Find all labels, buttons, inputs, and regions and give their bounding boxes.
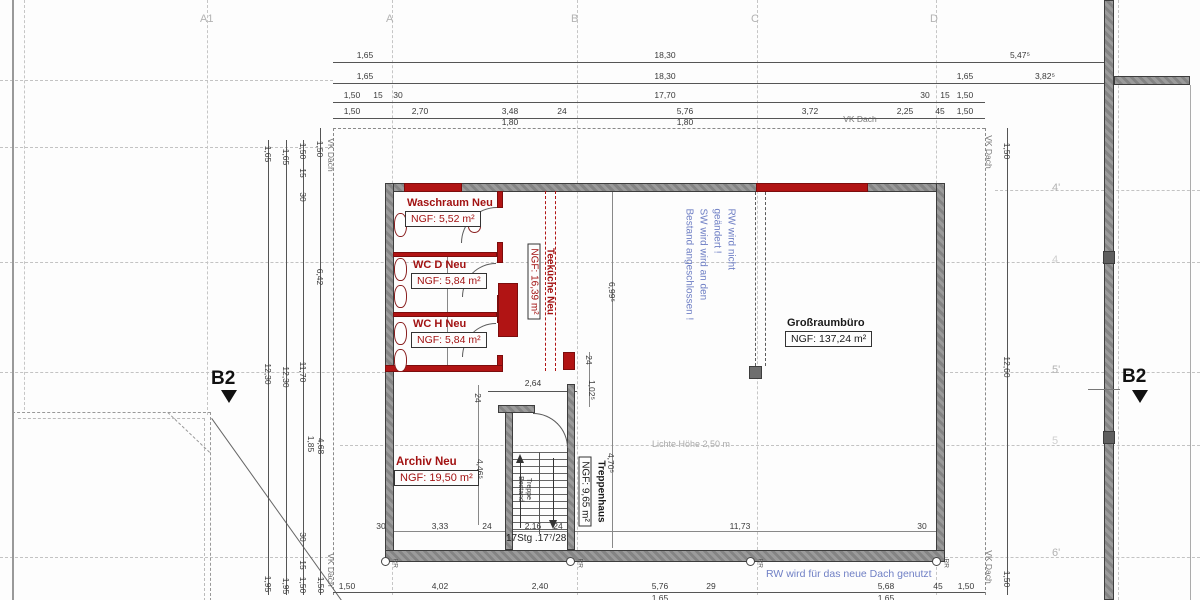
- dim-label: 4,68: [316, 424, 326, 468]
- stair-count-label: 17Stg .17⁷/28: [506, 533, 566, 544]
- grid-row-4p: [995, 190, 1200, 191]
- grid-label-c: C: [751, 13, 759, 25]
- wall-new-pier-c: [563, 352, 575, 370]
- dim-label: 1,95: [263, 562, 273, 600]
- room-ngf-wc-d: NGF: 5,84 m²: [411, 273, 487, 289]
- room-ngf-waschraum: NGF: 5,52 m²: [405, 211, 481, 227]
- grid-row-5p-l: [0, 372, 385, 373]
- dim-label: 6,42: [315, 255, 325, 299]
- dim-label: 17,70: [645, 90, 685, 100]
- vk-dach-label-top: VK Dach: [838, 114, 882, 124]
- grid-label-4: 4: [1052, 254, 1058, 266]
- stair-text: Treppe Bestand: [516, 454, 532, 524]
- wall-right: [936, 183, 945, 562]
- dim-line-mid-v1: [612, 192, 613, 548]
- grid-label-4p: 4': [1052, 182, 1060, 194]
- grid-row-5p-r: [945, 372, 1200, 373]
- dim-label: 5,68: [866, 581, 906, 591]
- dim-label: 1,50: [1002, 129, 1012, 173]
- roof-drain-label: RR: [943, 559, 950, 573]
- grid-label-6p: 6': [1052, 547, 1060, 559]
- dim-label: 1,50: [945, 90, 985, 100]
- grid-label-a: A: [386, 13, 393, 25]
- dim-label: 1,80: [490, 117, 530, 127]
- grid-line-d2: [1118, 0, 1119, 600]
- dim-label: 1,80: [665, 117, 705, 127]
- grid-label-b: B: [571, 13, 578, 25]
- roof-drain-label: RR: [392, 559, 399, 573]
- stair-arrow-down: [549, 520, 557, 529]
- dim-label: 1,65: [945, 71, 985, 81]
- wall-new-top-c: [756, 183, 868, 192]
- floor-plan: A1 A B C D 4' 4 5' 5 6' VK Dach VK Dach …: [0, 0, 1200, 600]
- dim-label: 18,30: [645, 71, 685, 81]
- grid-label-5p: 5': [1052, 364, 1060, 376]
- room-name-teekueche: Teeküche Neu: [545, 227, 556, 337]
- dim-label: 2,40: [520, 581, 560, 591]
- section-marker-b2-right: B2: [1122, 366, 1146, 388]
- wall-new-wc-h2: [393, 312, 497, 317]
- wall-stair-left: [505, 405, 513, 550]
- dim-label: 29: [691, 581, 731, 591]
- dim-line-top1: [333, 62, 1105, 63]
- roof-edge-top: [333, 128, 985, 129]
- left-edge-dash: [24, 0, 25, 410]
- dim-label: 5,76: [665, 106, 705, 116]
- dim-label: 1,65: [640, 593, 680, 600]
- column-c5: [749, 366, 762, 379]
- dim-label: 1,95: [281, 564, 291, 600]
- note-blue-line2: geändert !: [712, 209, 723, 349]
- roof-drain: [746, 557, 755, 566]
- dim-label: 1,50: [1002, 557, 1012, 600]
- dim-label: 11,70: [298, 350, 308, 394]
- dim-label: 11,73: [720, 521, 760, 531]
- wall-bottom: [385, 550, 945, 562]
- wall-existing-right: [1104, 0, 1114, 600]
- dim-label: 30: [298, 175, 308, 219]
- beam-right: [1114, 76, 1190, 85]
- dim-label: 3,48: [490, 106, 530, 116]
- note-blue-line4: Bestand angeschlossen !: [684, 209, 695, 349]
- dim-label: 1,50: [316, 563, 326, 600]
- room-name-treppenhaus: Treppenhaus: [596, 437, 607, 547]
- dim-line-top2: [333, 83, 1105, 84]
- room-label-treppenhaus: Treppenhaus NGF: 9,65 m²: [578, 437, 607, 547]
- dim-label: 1,50: [946, 581, 986, 591]
- room-label-teekueche: Teeküche Neu NGF: 16,39 m²: [527, 227, 556, 337]
- right-edge-line: [1190, 85, 1191, 600]
- section-marker-b2-left: B2: [211, 368, 235, 390]
- dim-label: 24: [473, 376, 483, 420]
- dim-label: 5,47⁵: [1000, 50, 1040, 60]
- dim-line-top3: [333, 102, 985, 103]
- dim-label: 1,65: [281, 135, 291, 179]
- column-right-4: [1103, 251, 1115, 264]
- dim-label: 1,65: [866, 593, 906, 600]
- dim-label: 1,65: [263, 132, 273, 176]
- roof-drain: [381, 557, 390, 566]
- wall-new-wc-v1: [497, 191, 503, 208]
- section-arrow-right: [1132, 390, 1148, 403]
- dim-label: 24: [542, 106, 582, 116]
- dim-label: 5,76: [640, 581, 680, 591]
- room-name-archiv: Archiv Neu: [396, 456, 457, 468]
- note-blue-line3: SW wird wird an den: [698, 209, 709, 349]
- dim-label: 12,30: [281, 355, 291, 399]
- stair-text-line1: Treppe: [524, 454, 532, 524]
- roof-drain-label: RR: [757, 559, 764, 573]
- vk-dach-label-left-top: VK Dach: [326, 133, 336, 177]
- dim-label: 2,25: [885, 106, 925, 116]
- stair-text-line2: Bestand: [516, 454, 524, 524]
- door-arc-stairwell: [533, 413, 568, 448]
- roof-drain: [566, 557, 575, 566]
- fixture-toilet: [394, 258, 407, 281]
- dim-label: 18,30: [645, 50, 685, 60]
- section-line-right: [1088, 389, 1120, 390]
- column-right-5: [1103, 431, 1115, 444]
- grid-row-4: [0, 262, 1200, 263]
- dim-label: 1,65: [345, 50, 385, 60]
- note-blue-line1: RW wird nicht: [726, 209, 737, 349]
- room-name-wc-h: WC H Neu: [413, 318, 466, 330]
- fixture-toilet: [394, 349, 407, 372]
- dim-label: 3,72: [790, 106, 830, 116]
- roof-drain-label: RR: [577, 559, 584, 573]
- roof-drain: [932, 557, 941, 566]
- dim-label: 1,50: [298, 563, 308, 600]
- fixture-toilet: [394, 285, 407, 308]
- dim-line-left4: [320, 128, 321, 595]
- dim-line-top4: [333, 118, 985, 119]
- dim-label: 1,50: [315, 127, 325, 171]
- wall-new-wc-v2: [497, 242, 503, 263]
- dim-label: 1,50: [327, 581, 367, 591]
- dim-label: 12,30: [263, 352, 273, 396]
- room-name-waschraum: Waschraum Neu: [407, 197, 493, 209]
- dim-label: 3,82⁵: [1025, 71, 1065, 81]
- vk-dach-label-right-top: VK Dach: [984, 130, 994, 174]
- wall-new-pier: [498, 283, 518, 337]
- grid-row-5: [340, 445, 1200, 446]
- wall-left: [385, 183, 394, 562]
- wall-new-top-a: [404, 183, 462, 192]
- room-ngf-archiv: NGF: 19,50 m²: [394, 470, 479, 486]
- dim-label: 6,99⁵: [607, 270, 617, 314]
- grid-line-a1: [207, 0, 208, 415]
- roof-edge-right: [985, 128, 986, 595]
- dim-label: 2,64: [513, 378, 553, 388]
- note-lichte-hoehe: Lichte Höhe 2,50 m: [652, 439, 730, 449]
- dim-label: 4,70⁵: [606, 441, 616, 485]
- wall-new-wc-h1: [393, 252, 497, 257]
- roof-edge-left: [333, 128, 334, 595]
- dim-label: 1,65: [345, 71, 385, 81]
- room-name-wc-d: WC D Neu: [413, 259, 466, 271]
- dim-label: 30: [378, 90, 418, 100]
- room-name-grossraumbuero: Großraumbüro: [787, 317, 865, 329]
- section-arrow-left: [221, 390, 237, 403]
- dim-label: 1,85: [306, 422, 316, 466]
- dim-label: 1,50: [332, 106, 372, 116]
- grid-label-d: D: [930, 13, 938, 25]
- stair-walkline-down: [553, 458, 554, 520]
- dim-label: 1,02⁵: [587, 368, 597, 412]
- wall-stair-top: [498, 405, 535, 413]
- room-ngf-wc-h: NGF: 5,84 m²: [411, 332, 487, 348]
- dim-label: 4,02: [420, 581, 460, 591]
- dim-label: 3,33: [420, 521, 460, 531]
- dim-label: 2,70: [400, 106, 440, 116]
- note-blue-bottom: RW wird für das neue Dach genutzt: [766, 568, 932, 580]
- beam-dashed-c: [755, 192, 766, 366]
- room-ngf-treppenhaus: NGF: 9,65 m²: [579, 456, 592, 527]
- dim-line-stairrow: [393, 531, 937, 532]
- stair-divider: [539, 452, 540, 534]
- fixture-toilet: [394, 322, 407, 345]
- dim-label: 24: [467, 521, 507, 531]
- grid-label-a1: A1: [200, 13, 213, 25]
- neighbour-building-inner: [18, 418, 205, 600]
- wall-stair-right: [567, 384, 575, 550]
- dim-line-corridor: [488, 391, 577, 392]
- dim-label: 1,50: [945, 106, 985, 116]
- grid-label-5: 5: [1052, 435, 1058, 447]
- room-ngf-grossraumbuero: NGF: 137,24 m²: [785, 331, 872, 347]
- grid-row-top: [0, 80, 333, 81]
- dim-label: 30: [361, 521, 401, 531]
- room-ngf-teekueche: NGF: 16,39 m²: [528, 243, 541, 319]
- dim-label: 12,60: [1002, 345, 1012, 389]
